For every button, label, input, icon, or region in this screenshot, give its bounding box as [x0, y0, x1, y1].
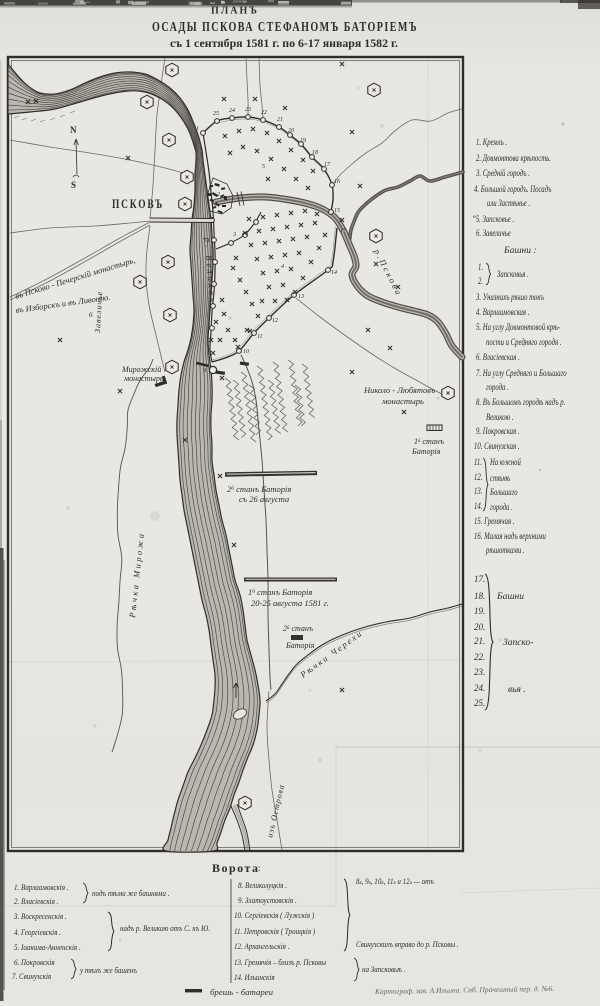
- svg-text:20-25 августа 1581 г.: 20-25 августа 1581 г.: [251, 598, 329, 608]
- svg-text:14: 14: [331, 269, 337, 276]
- svg-text:10: 10: [243, 349, 249, 355]
- svg-text:10. Свинузская .: 10. Свинузская .: [474, 441, 520, 451]
- svg-text:8я, 9я, 10я, 11я и 12я — отъ: 8я, 9я, 10я, 11я и 12я — отъ: [356, 876, 434, 886]
- svg-text:N: N: [70, 125, 77, 135]
- svg-text:вья .: вья .: [508, 685, 526, 695]
- svg-text:2й станъ Баторія: 2й станъ Баторія: [227, 484, 291, 494]
- svg-text:2. Довмонтова крѣпость.: 2. Довмонтова крѣпость.: [476, 153, 551, 163]
- svg-text:”5. Запсковье .: ”5. Запсковье .: [472, 214, 514, 224]
- svg-text:рѣшотками .: рѣшотками .: [485, 545, 524, 555]
- svg-text:надъ р. Великою отъ С. къ Ю.: надъ р. Великою отъ С. къ Ю.: [120, 923, 210, 933]
- svg-text:3. Воскресенскія .: 3. Воскресенскія .: [13, 911, 67, 921]
- svg-text:16. Малая надъ верхними: 16. Малая надъ верхними: [474, 531, 546, 541]
- svg-text:25.: 25.: [474, 698, 485, 708]
- svg-text:1.: 1.: [478, 262, 483, 272]
- svg-text:3: 3: [232, 232, 236, 238]
- svg-text:1. Кремль .: 1. Кремль .: [476, 137, 507, 147]
- svg-text:Баторія: Баторія: [411, 447, 441, 456]
- svg-text:15: 15: [334, 208, 340, 214]
- svg-text:19.: 19.: [474, 606, 485, 616]
- svg-text:13: 13: [298, 294, 304, 300]
- svg-text:Запско-: Запско-: [503, 638, 533, 648]
- svg-text:Мирожскій: Мирожскій: [121, 365, 161, 374]
- svg-text:монастырь: монастырь: [381, 396, 424, 406]
- svg-text:8. Великолуцкія .: 8. Великолуцкія .: [238, 880, 287, 890]
- svg-text:пости и Средняго городя .: пости и Средняго городя .: [486, 337, 561, 347]
- svg-text:На южной: На южной: [489, 457, 521, 467]
- svg-text:4. Большой городъ. Посадъ: 4. Большой городъ. Посадъ: [474, 184, 551, 194]
- svg-text:23: 23: [245, 107, 251, 113]
- svg-text:Запсковья .: Запсковья .: [497, 269, 529, 279]
- svg-text:стѣнѣ: стѣнѣ: [490, 473, 511, 483]
- svg-text:4. Варлаамовская .: 4. Варлаамовская .: [476, 307, 529, 317]
- svg-text:ОСАДЫ ПСКОВА СТЕФАНОМЪ БАТОРІЕ: ОСАДЫ ПСКОВА СТЕФАНОМЪ БАТОРІЕМЪ: [152, 20, 418, 35]
- svg-text:18.: 18.: [474, 591, 485, 601]
- svg-text:Большаго: Большаго: [489, 487, 517, 497]
- svg-text:4: 4: [281, 263, 284, 270]
- svg-text:Баторія: Баторія: [285, 641, 315, 650]
- svg-text:ПЛАНЪ: ПЛАНЪ: [211, 6, 259, 17]
- svg-text:9: 9: [203, 368, 206, 374]
- svg-text:12: 12: [272, 318, 278, 324]
- svg-text:9. Златоустовскія .: 9. Златоустовскія .: [238, 895, 297, 905]
- svg-text:1: 1: [196, 126, 199, 132]
- svg-text:25: 25: [213, 111, 219, 117]
- svg-text:20: 20: [288, 128, 294, 134]
- svg-text:18: 18: [312, 150, 318, 156]
- svg-text:14.: 14.: [474, 501, 482, 511]
- svg-text:12.: 12.: [474, 472, 482, 482]
- svg-text:Башни :: Башни :: [503, 246, 537, 256]
- svg-text:Башни: Башни: [496, 592, 524, 602]
- svg-text:11: 11: [257, 334, 263, 340]
- svg-text:11. Петровскія ( Троицкія ): 11. Петровскія ( Троицкія ): [234, 926, 316, 936]
- svg-text:20.: 20.: [474, 622, 485, 632]
- svg-text:Свинузскихъ вправо до р. Псков: Свинузскихъ вправо до р. Псковы .: [356, 939, 459, 949]
- svg-text:13.: 13.: [474, 486, 482, 496]
- svg-text:19: 19: [300, 138, 306, 144]
- svg-text:6. Завеличье: 6. Завеличье: [476, 228, 511, 238]
- svg-text:5. На углу Довмонтовой крѣ-: 5. На углу Довмонтовой крѣ-: [476, 322, 560, 332]
- svg-text:Великою .: Великою .: [486, 412, 514, 422]
- svg-text:города .: города .: [490, 502, 513, 512]
- svg-text:15. Гремячая .: 15. Гремячая .: [474, 516, 514, 526]
- svg-text:8. Въ Большомъ городѣ надъ р.: 8. Въ Большомъ городѣ надъ р.: [476, 397, 565, 407]
- svg-text:24: 24: [229, 107, 235, 114]
- svg-text:брешь - батареи: брешь - батареи: [210, 987, 274, 997]
- svg-text:съ 26 августа: съ 26 августа: [239, 494, 289, 504]
- svg-text:21.: 21.: [474, 636, 485, 646]
- svg-text:24.: 24.: [474, 683, 485, 693]
- svg-text:ПСКОВЪ: ПСКОВЪ: [112, 196, 164, 211]
- svg-text:1. Варлаамовскія .: 1. Варлаамовскія .: [14, 882, 69, 892]
- svg-text:17.: 17.: [474, 574, 485, 584]
- svg-text:2. Власіевскія .: 2. Власіевскія .: [14, 896, 58, 906]
- svg-text:6: 6: [89, 311, 93, 319]
- svg-text:16: 16: [334, 179, 340, 185]
- svg-text:Николо - Любятовъ: Николо - Любятовъ: [363, 385, 436, 395]
- svg-text:2.: 2.: [478, 276, 483, 286]
- svg-text:5. Іоакима-Анненскія .: 5. Іоакима-Анненскія .: [14, 942, 81, 952]
- svg-text:3. Унизнихъ рѣшо токъ: 3. Унизнихъ рѣшо токъ: [475, 292, 544, 302]
- svg-text:21: 21: [277, 117, 283, 123]
- svg-text:6. Покровскія: 6. Покровскія: [14, 957, 55, 967]
- svg-text:6. Власіевская .: 6. Власіевская .: [476, 352, 520, 362]
- svg-text:23.: 23.: [474, 667, 485, 677]
- svg-text:подъ тѣми же башнями .: подъ тѣми же башнями .: [92, 888, 170, 898]
- svg-text:11.: 11.: [474, 457, 482, 467]
- svg-text:7. Свинузскія: 7. Свинузскія: [12, 971, 51, 981]
- svg-text:Ворота: Ворота: [212, 861, 260, 875]
- svg-text:17: 17: [324, 162, 331, 168]
- svg-text:5: 5: [262, 164, 265, 170]
- svg-text:7. На углу Средняго и Большаго: 7. На углу Средняго и Большаго: [476, 368, 567, 378]
- svg-text:3. Средній городъ .: 3. Средній городъ .: [475, 168, 530, 178]
- svg-text:22: 22: [261, 110, 267, 116]
- svg-text:22.: 22.: [474, 652, 485, 662]
- svg-text:13. Гремячія – близъ р. Псковы: 13. Гремячія – близъ р. Псковы: [234, 957, 327, 967]
- svg-text:съ 1 сентября 1581 г. по 6-17: съ 1 сентября 1581 г. по 6-17 января 158…: [170, 38, 398, 50]
- svg-text:или Застѣнье .: или Застѣнье .: [487, 198, 530, 208]
- svg-text:города .: города .: [486, 382, 509, 392]
- svg-text:12. Архангельскія .: 12. Архангельскія .: [234, 941, 290, 951]
- svg-text:2: 2: [217, 192, 220, 198]
- svg-text:10. Сергіевскія ( Лужскія ): 10. Сергіевскія ( Лужскія ): [234, 910, 315, 920]
- svg-text:монастырь: монастырь: [123, 374, 164, 383]
- svg-text::: :: [258, 863, 261, 873]
- svg-text:у тѣхъ же башенъ: у тѣхъ же башенъ: [79, 965, 137, 975]
- svg-text:9. Покровская .: 9. Покровская .: [476, 426, 520, 436]
- svg-text:на Запсковьѣ .: на Запсковьѣ .: [362, 964, 406, 974]
- svg-text:1й станъ Баторія: 1й станъ Баторія: [248, 587, 312, 597]
- svg-text:S: S: [71, 180, 76, 190]
- svg-text:14. Ильинскія: 14. Ильинскія: [234, 972, 275, 982]
- svg-text:4. Георгіевскія .: 4. Георгіевскія .: [14, 927, 61, 937]
